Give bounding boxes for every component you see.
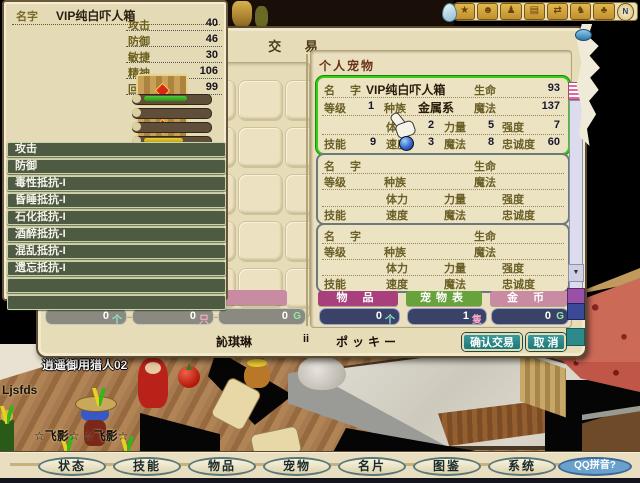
- team-icon[interactable]: ♞: [570, 3, 591, 20]
- defense-value: 46: [206, 33, 218, 45]
- pet-magic2-label: 魔法: [444, 136, 466, 152]
- item-slot[interactable]: [239, 81, 282, 120]
- own-gold-count-unit: G: [293, 311, 301, 322]
- partner-gold-count-value: 0: [545, 310, 551, 322]
- pet-entry-3[interactable]: 名 字 生命 等级 种族 魔法 体力 力量 强度 技能 速度 魔法: [316, 223, 570, 293]
- partner-item-count-unit: 个: [385, 311, 395, 326]
- pet-name-label: 名: [324, 158, 335, 174]
- pet-speed-label: 速度: [386, 276, 408, 292]
- pet-stamina-value: 2: [428, 119, 434, 131]
- blue-lens-decoration: [575, 29, 592, 41]
- game-screen: 逍遥御用猎人02 Ljsfds ☆飞影☆ ☆飞影☆ 交 易 金币 0 个 0 只…: [0, 0, 640, 483]
- pet-life-label: 生命: [474, 158, 496, 174]
- partner-item-count-value: 0: [376, 310, 382, 322]
- spirit-value: 106: [200, 65, 218, 77]
- gauge-1: [132, 94, 212, 105]
- scrollbar-down-arrow[interactable]: ▼: [568, 264, 584, 282]
- pet-level-value: 1: [368, 100, 374, 112]
- recovery-value: 99: [206, 81, 218, 93]
- pet-name-label: 字: [350, 158, 361, 174]
- pet-strength-value: 5: [488, 119, 494, 131]
- own-pet-count-unit: 只: [199, 311, 209, 326]
- pet-stamina-label: 体力: [386, 191, 408, 207]
- pet-sprite: [298, 356, 346, 390]
- skill-row[interactable]: 毒性抵抗-I: [7, 176, 226, 191]
- skill-row[interactable]: 混乱抵抗-I: [7, 244, 226, 259]
- pet-life-label: 生命: [474, 82, 496, 98]
- pet-magic-value: 137: [542, 100, 560, 112]
- attr-row-agility: 敏捷 30: [126, 48, 222, 63]
- own-gold-count: 0 G: [218, 308, 306, 325]
- menu-skills-button[interactable]: 技能: [113, 457, 181, 476]
- pet-skill-label: 技能: [324, 136, 346, 152]
- partner-item-count: 0 个: [319, 308, 400, 325]
- pet-name-label: 名: [324, 228, 335, 244]
- bottom-menu-bar: 状态 技能 物品 宠物 名片 图鉴 系统 QQ拼音?: [0, 452, 640, 479]
- trade-icon[interactable]: ⇄: [547, 3, 568, 20]
- pet-magic-label: 魔法: [474, 244, 496, 260]
- pet-strength-label: 力量: [444, 260, 466, 276]
- attr-row-defense: 防御 46: [126, 32, 222, 47]
- partner-gold-count: 0 G: [491, 308, 569, 325]
- partner-petlist-header: 宠物表: [406, 291, 482, 306]
- trade-status-text: ii: [303, 333, 309, 345]
- gold-pot: [244, 362, 270, 388]
- own-trader-name: 訫琪琳: [216, 333, 252, 350]
- attr-row-attack: 攻击 40: [126, 16, 222, 31]
- menu-pets-button[interactable]: 宠物: [263, 457, 331, 476]
- bottom-strip: [0, 478, 640, 483]
- side-purple-button[interactable]: [567, 288, 585, 304]
- partner-pet-count-value: 1: [463, 310, 469, 322]
- name-label: 名字: [16, 8, 38, 24]
- ime-indicator-button[interactable]: QQ拼音?: [558, 457, 632, 476]
- pet-magic2-value: 8: [488, 136, 494, 148]
- skill-row-empty: [7, 295, 226, 310]
- gauge-3: [132, 122, 212, 133]
- skill-list: 攻击 防御 毒性抵抗-I 昏睡抵抗-I 石化抵抗-I 酒醉抵抗-I 混乱抵抗-I…: [7, 142, 226, 312]
- pet-skill-label: 技能: [324, 207, 346, 223]
- pets-panel-title: 个人宠物: [319, 57, 375, 74]
- agility-label: 敏捷: [128, 49, 150, 65]
- tomato-item: [178, 366, 200, 388]
- pet-level-label: 等级: [324, 174, 346, 190]
- item-slot[interactable]: [239, 128, 282, 167]
- pet-magic2-label: 魔法: [444, 276, 466, 292]
- partner-pets-panel: 个人宠物 名 字 VIP纯白吓人箱 生命 93 等级 1 种族 金属系 魔法 1…: [310, 50, 572, 328]
- pet-speed-label: 速度: [386, 207, 408, 223]
- pet-stats-panel: 名字 VIP纯白吓人箱 攻击 40 防御 46 敏捷 30 精神 106 回复 …: [2, 0, 228, 301]
- namecard-icon[interactable]: ▤: [524, 3, 545, 20]
- pet-life-value: 93: [548, 82, 560, 94]
- skill-row-empty: [7, 278, 226, 293]
- cancel-button[interactable]: 取 消: [526, 333, 566, 351]
- partner-gold-count-unit: G: [556, 311, 564, 322]
- defense-label: 防御: [128, 33, 150, 49]
- pet-entry-2[interactable]: 名 字 生命 等级 种族 魔法 体力 力量 强度 技能 速度 魔法: [316, 153, 570, 225]
- pet-race-value: 金属系: [418, 99, 454, 116]
- own-item-count-unit: 个: [112, 311, 122, 326]
- partner-trader-name: ポッキー: [336, 333, 400, 350]
- shelf-jar: [232, 1, 252, 28]
- compass-icon[interactable]: N: [617, 3, 634, 21]
- pet-stamina-label: 体力: [386, 260, 408, 276]
- menu-status-button[interactable]: 状态: [38, 457, 106, 476]
- menu-system-button[interactable]: 系统: [488, 457, 556, 476]
- pet-loyalty-label: 忠诚度: [502, 207, 535, 223]
- npc-character[interactable]: [138, 358, 168, 408]
- pet-magic-label: 魔法: [474, 100, 496, 116]
- pet-race-label: 种族: [384, 244, 406, 260]
- pet-level-label: 等级: [324, 100, 346, 116]
- pet-entry-1[interactable]: 名 字 VIP纯白吓人箱 生命 93 等级 1 种族 金属系 魔法 137 体力…: [316, 76, 570, 155]
- shortcut-icon-bar: ★ ☻ ♟ ▤ ⇄ ♞ ♣ N: [450, 2, 638, 21]
- pet-name-label: 名: [324, 82, 335, 98]
- pet-skill-value: 9: [370, 136, 376, 148]
- player-name-label: 逍遥御用猎人02: [42, 356, 127, 373]
- emote-icon[interactable]: ♣: [593, 3, 614, 20]
- item-slot[interactable]: [239, 222, 282, 261]
- mouse-cursor: [392, 112, 418, 152]
- agility-value: 30: [206, 49, 218, 61]
- skill-row[interactable]: 遗忘抵抗-I: [7, 261, 226, 276]
- attack-label: 攻击: [128, 17, 150, 33]
- partner-pet-count: 1 隻: [407, 308, 487, 325]
- side-navy-button[interactable]: [567, 303, 585, 320]
- pet-loyalty-label: 忠诚度: [502, 276, 535, 292]
- pet-strength-label: 力量: [444, 191, 466, 207]
- pet-loyalty-label: 忠诚度: [502, 136, 535, 152]
- skill-row[interactable]: 攻击: [7, 142, 226, 157]
- item-slot[interactable]: [239, 175, 282, 214]
- confirm-trade-button[interactable]: 确认交易: [462, 333, 522, 351]
- cursor-blue-orb: [399, 136, 414, 151]
- partner-pet-count-unit: 隻: [472, 311, 482, 326]
- pet-name-label: 字: [350, 228, 361, 244]
- menu-encyclopedia-button[interactable]: 图鉴: [413, 457, 481, 476]
- pet-life-label: 生命: [474, 228, 496, 244]
- partner-items-header: 物 品: [318, 291, 398, 306]
- floor-name-label: Ljsfds: [2, 383, 37, 397]
- skill-row[interactable]: 防御: [7, 159, 226, 174]
- pet-race-label: 种族: [384, 174, 406, 190]
- party-icon[interactable]: ♟: [500, 3, 521, 20]
- pet-name-label: ☆飞影☆ ☆飞影☆: [34, 427, 128, 444]
- pet-power-value: 7: [554, 119, 560, 131]
- pet-speed-value: 3: [428, 136, 434, 148]
- pet-skill-label: 技能: [324, 276, 346, 292]
- partner-gold-header: 金 币: [490, 291, 567, 306]
- chat-icon[interactable]: ☻: [477, 3, 498, 20]
- pet-strength-label: 力量: [444, 119, 466, 135]
- skill-row[interactable]: 酒醉抵抗-I: [7, 227, 226, 242]
- menu-items-button[interactable]: 物品: [188, 457, 256, 476]
- action-icon[interactable]: ★: [454, 3, 475, 20]
- pet-loyalty-value: 60: [548, 136, 560, 148]
- skill-row[interactable]: 昏睡抵抗-I: [7, 193, 226, 208]
- skill-row[interactable]: 石化抵抗-I: [7, 210, 226, 225]
- pet-power-label: 强度: [502, 191, 524, 207]
- teardrop-decoration: [442, 3, 457, 22]
- pet-power-label: 强度: [502, 119, 524, 135]
- side-teal-button[interactable]: [566, 328, 585, 346]
- pet-name-value: VIP纯白吓人箱: [366, 81, 445, 98]
- pet-name-label: 字: [350, 82, 361, 98]
- gauge-2: [132, 108, 212, 119]
- name-value: VIP纯白吓人箱: [56, 7, 135, 24]
- pet-magic2-label: 魔法: [444, 207, 466, 223]
- pet-level-label: 等级: [324, 244, 346, 260]
- own-gold-count-value: 0: [282, 310, 288, 322]
- shelf-jar: [255, 6, 268, 28]
- pet-magic-label: 魔法: [474, 174, 496, 190]
- menu-namecard-button[interactable]: 名片: [338, 457, 406, 476]
- pet-power-label: 强度: [502, 260, 524, 276]
- attack-value: 40: [206, 17, 218, 29]
